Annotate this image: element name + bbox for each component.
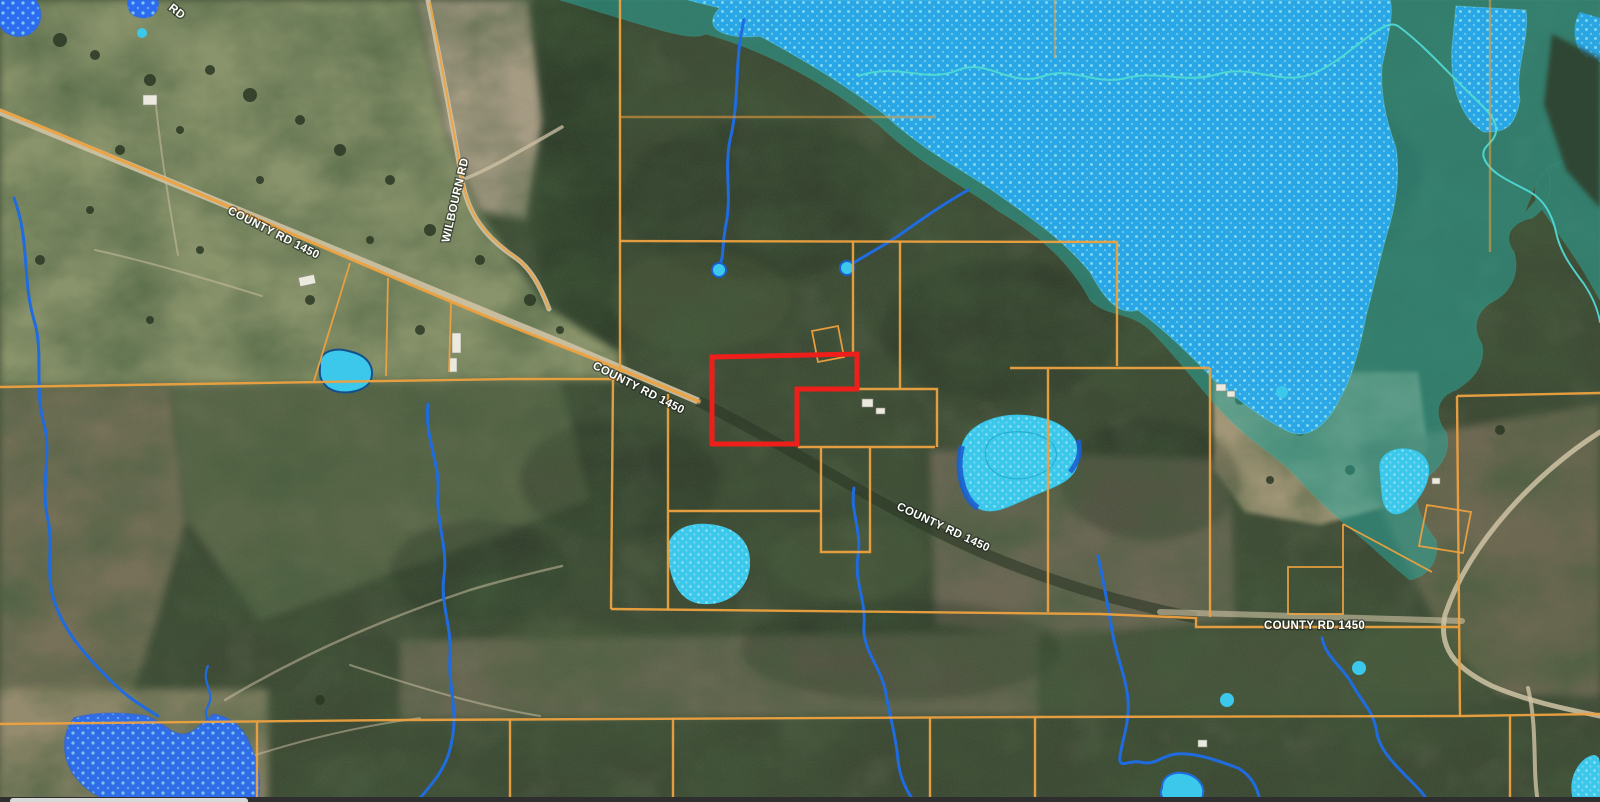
flood-zone-bottom-left bbox=[65, 713, 260, 802]
bottom-rounded-panel[interactable] bbox=[10, 798, 248, 802]
pond-small-se1 bbox=[1352, 661, 1366, 675]
pond-stream-end-1 bbox=[712, 263, 726, 277]
pond-small-field bbox=[1276, 386, 1288, 398]
map-svg: COUNTY RD 1450 COUNTY RD 1450 COUNTY RD … bbox=[0, 0, 1600, 802]
pond-small-topleft bbox=[137, 28, 147, 38]
pond-small-se2 bbox=[1220, 693, 1234, 707]
pond-center bbox=[667, 524, 750, 604]
road-label-county-rd-1450-east: COUNTY RD 1450 bbox=[1264, 620, 1365, 632]
map-canvas[interactable]: COUNTY RD 1450 COUNTY RD 1450 COUNTY RD … bbox=[0, 0, 1600, 802]
